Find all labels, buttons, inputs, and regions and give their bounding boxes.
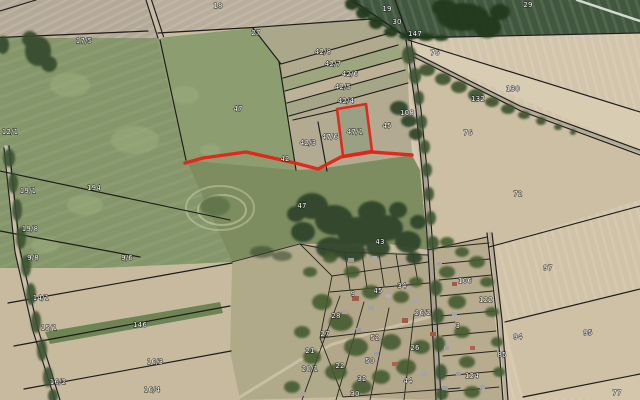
parcel-label: 32 xyxy=(357,375,366,383)
parcel-label: 16/2 xyxy=(50,378,67,386)
parcel-label: 16/3 xyxy=(147,358,164,366)
parcel-label: 77 xyxy=(612,389,621,397)
parcel-label: 147 xyxy=(408,30,422,38)
parcel-label: 42/6 xyxy=(342,70,359,78)
parcel-label: 76 xyxy=(430,49,440,57)
parcel-label: 122 xyxy=(479,296,493,304)
parcel-label: 3 xyxy=(456,322,461,330)
parcel-label: 34 xyxy=(397,282,407,290)
parcel-label: 42/3 xyxy=(300,139,317,147)
parcel-label: 27 xyxy=(251,29,260,37)
parcel-label: 18 xyxy=(213,2,222,10)
parcel-label: 85 xyxy=(497,351,506,359)
parcel-label: 19/1 xyxy=(20,187,37,195)
parcel-label: 43 xyxy=(375,238,384,246)
parcel-label: 26/2 xyxy=(415,309,432,317)
parcel-label: 19 xyxy=(382,5,391,13)
parcel-label: 45 xyxy=(382,122,391,130)
parcel-label: 124 xyxy=(465,372,479,380)
parcel-label: 19/8 xyxy=(22,225,39,233)
parcel-label: 9 xyxy=(351,290,356,298)
parcel-label: 42/7 xyxy=(325,60,342,68)
parcel-label: 132 xyxy=(471,95,485,103)
parcel-label: 42/8 xyxy=(315,48,332,56)
parcel-label: 72 xyxy=(513,190,522,198)
parcel-label: 42/5 xyxy=(335,83,352,91)
parcel-label: 30 xyxy=(392,18,401,26)
parcel-label: 27 xyxy=(320,330,329,338)
parcel-label: 45 xyxy=(373,287,382,295)
parcel-label: 21 xyxy=(305,347,314,355)
parcel-label: 47 xyxy=(233,105,242,113)
parcel-label: 76 xyxy=(463,129,473,137)
parcel-label: 52 xyxy=(370,334,379,342)
aerial-cadastral-map: 17/5182719301472976130132767242/842/742/… xyxy=(0,0,640,400)
parcel-label: 146 xyxy=(133,321,147,329)
parcel-label: 9/8 xyxy=(27,254,39,262)
parcel-label: 47/1 xyxy=(347,128,364,136)
parcel-label: 12/1 xyxy=(2,128,19,136)
parcel-label: 30 xyxy=(350,390,359,398)
parcel-label: 9/6 xyxy=(121,254,133,262)
parcel-label: 47 xyxy=(297,202,306,210)
parcel-label: 106 xyxy=(458,277,472,285)
parcel-label: 194 xyxy=(87,184,101,192)
parcel-label: 95 xyxy=(583,329,592,337)
parcel-label: 97 xyxy=(543,264,552,272)
parcel-label: 130 xyxy=(506,85,520,93)
parcel-label: 50 xyxy=(365,357,374,365)
parcel-label: 20/1 xyxy=(302,365,319,373)
parcel-label: 28 xyxy=(331,312,340,320)
parcel-label: 29 xyxy=(523,1,532,9)
parcel-label: 47/6 xyxy=(322,133,339,141)
parcel-label: 94 xyxy=(513,333,523,341)
parcel-label: 14/1 xyxy=(33,294,50,302)
parcel-label: 108 xyxy=(400,109,414,117)
map-viewport[interactable]: 17/5182719301472976130132767242/842/742/… xyxy=(0,0,640,400)
parcel-label: 26 xyxy=(410,344,420,352)
parcel-label: 17/5 xyxy=(76,37,93,45)
parcel-label: 15/1 xyxy=(41,324,58,332)
parcel-label: 16/4 xyxy=(144,386,161,394)
parcel-label: 42/4 xyxy=(338,97,355,105)
parcel-label: 22 xyxy=(335,362,344,370)
parcel-label: 44 xyxy=(403,377,413,385)
parcel-label: 42 xyxy=(280,155,289,163)
